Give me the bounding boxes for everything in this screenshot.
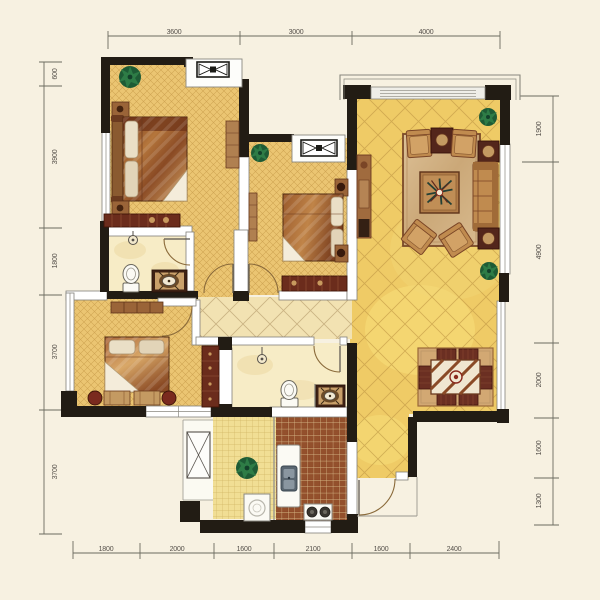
svg-text:2100: 2100 xyxy=(306,546,321,553)
svg-text:2000: 2000 xyxy=(170,546,185,553)
svg-text:1300: 1300 xyxy=(536,493,543,508)
svg-text:2000: 2000 xyxy=(536,372,543,387)
svg-text:1800: 1800 xyxy=(99,546,114,553)
svg-text:4900: 4900 xyxy=(536,244,543,259)
svg-text:600: 600 xyxy=(52,68,59,79)
svg-text:1800: 1800 xyxy=(52,253,59,268)
svg-text:3000: 3000 xyxy=(289,29,304,36)
svg-text:1600: 1600 xyxy=(237,546,252,553)
svg-text:1900: 1900 xyxy=(536,121,543,136)
svg-text:3700: 3700 xyxy=(52,464,59,479)
svg-text:2400: 2400 xyxy=(447,546,462,553)
svg-text:1600: 1600 xyxy=(374,546,389,553)
svg-text:4000: 4000 xyxy=(419,29,434,36)
svg-text:3900: 3900 xyxy=(52,149,59,164)
svg-text:1600: 1600 xyxy=(536,440,543,455)
svg-text:3600: 3600 xyxy=(167,29,182,36)
svg-text:3700: 3700 xyxy=(52,344,59,359)
